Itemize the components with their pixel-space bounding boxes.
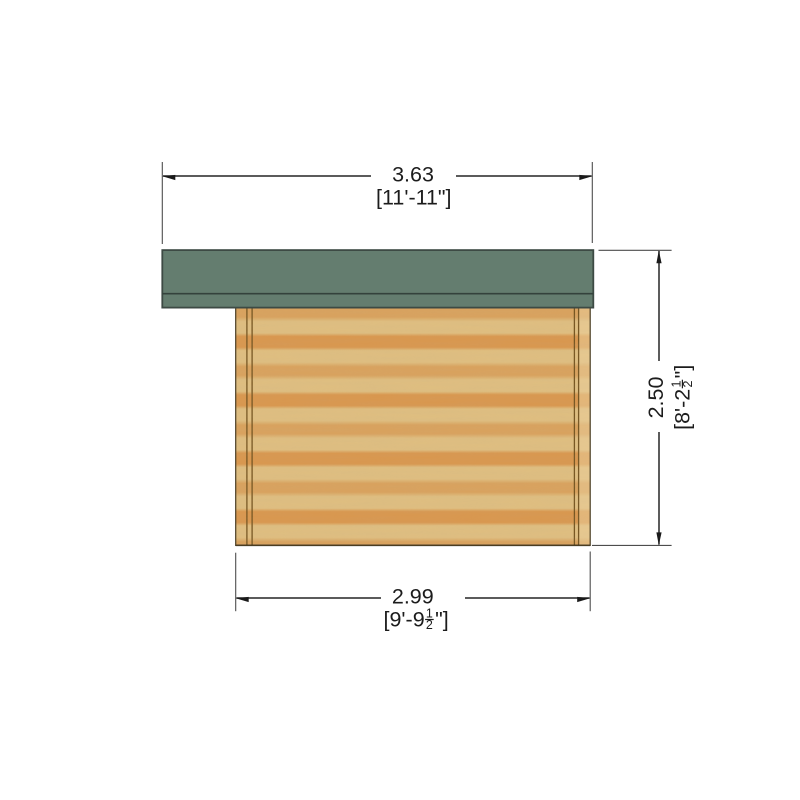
svg-text:[8'-2: [8'-2 bbox=[671, 389, 695, 430]
svg-text:[11'-11"]: [11'-11"] bbox=[376, 186, 451, 210]
svg-text:"]: "] bbox=[671, 365, 695, 379]
svg-text:"]: "] bbox=[435, 608, 449, 632]
svg-text:[9'-9: [9'-9 bbox=[384, 608, 425, 632]
svg-text:2.50: 2.50 bbox=[644, 377, 668, 419]
svg-text:2.99: 2.99 bbox=[392, 584, 434, 608]
svg-text:3.63: 3.63 bbox=[392, 162, 434, 186]
